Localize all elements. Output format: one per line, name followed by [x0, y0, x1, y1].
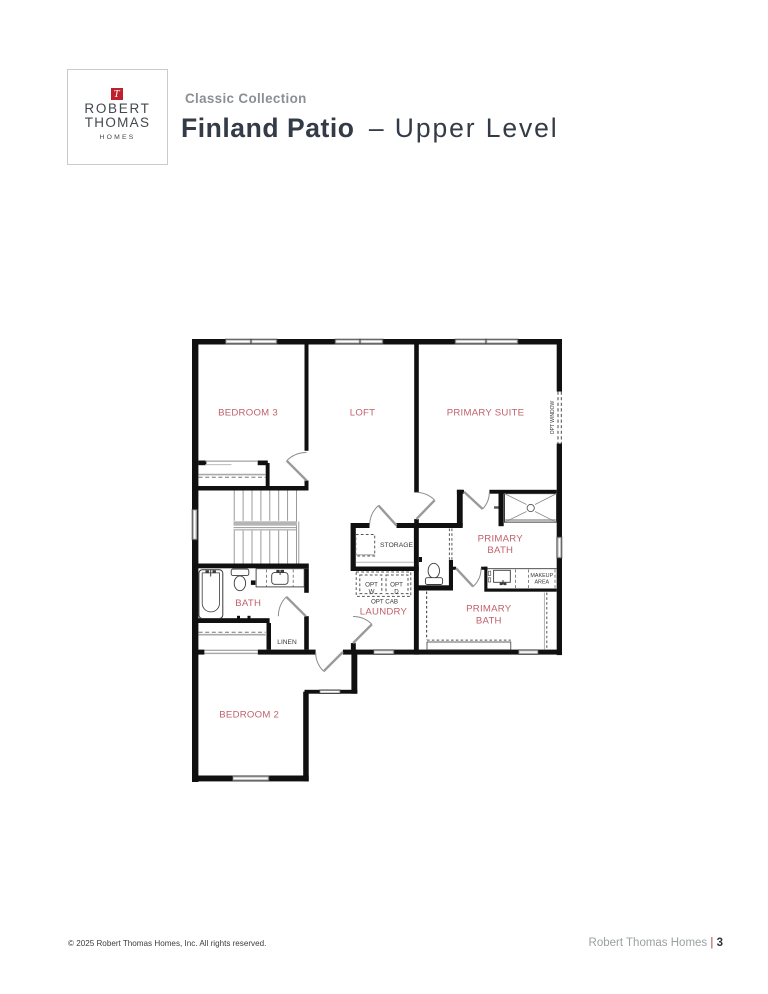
svg-text:BATH: BATH: [476, 615, 502, 626]
svg-text:LINEN: LINEN: [277, 639, 297, 646]
svg-text:PRIMARY: PRIMARY: [466, 604, 512, 615]
svg-text:BATH: BATH: [235, 598, 261, 609]
svg-text:MAKEUP: MAKEUP: [530, 573, 553, 579]
svg-text:LAUNDRY: LAUNDRY: [360, 607, 408, 618]
svg-text:BEDROOM 3: BEDROOM 3: [218, 408, 278, 419]
svg-text:OPT: OPT: [365, 582, 378, 589]
svg-text:BEDROOM 2: BEDROOM 2: [219, 710, 279, 721]
svg-text:AREA: AREA: [534, 580, 549, 586]
svg-text:W: W: [369, 589, 375, 596]
svg-text:OPT WINDOW: OPT WINDOW: [550, 400, 556, 434]
svg-text:PRIMARY: PRIMARY: [478, 533, 524, 544]
svg-text:OPT CAB: OPT CAB: [371, 598, 398, 605]
svg-text:D: D: [394, 589, 399, 596]
svg-text:PRIMARY SUITE: PRIMARY SUITE: [447, 408, 525, 419]
svg-text:STORAGE: STORAGE: [380, 542, 414, 549]
svg-text:LOFT: LOFT: [350, 408, 376, 419]
svg-text:OPT: OPT: [390, 582, 403, 589]
svg-text:BATH: BATH: [487, 545, 513, 556]
